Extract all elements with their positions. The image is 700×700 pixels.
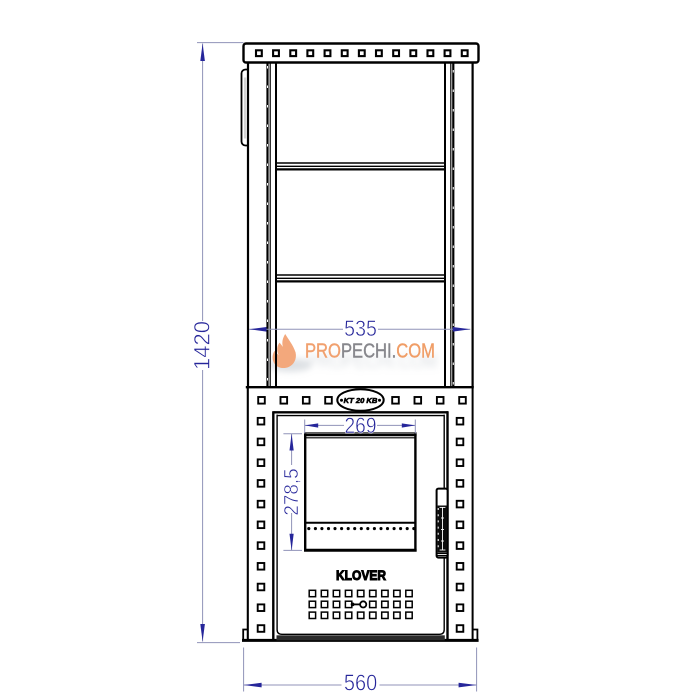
svg-text:PROPECHI.COM: PROPECHI.COM [305,339,435,362]
svg-text:1420: 1420 [189,321,214,370]
svg-text:KT 20 KB: KT 20 KB [344,396,378,405]
svg-text:535: 535 [344,317,377,342]
svg-text:278,5: 278,5 [280,468,303,515]
svg-text:KLOVER: KLOVER [336,567,387,583]
svg-text:560: 560 [344,669,377,696]
svg-text:269: 269 [345,414,377,439]
